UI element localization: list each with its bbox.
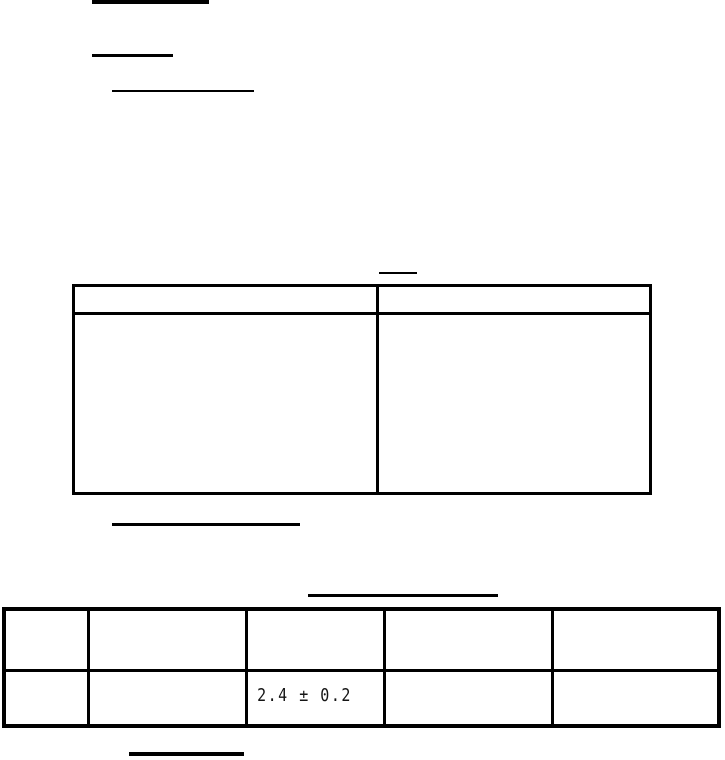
heading-underline-1: [92, 0, 209, 4]
heading-underline-2: [92, 54, 173, 57]
table2-caption-underline: [308, 594, 498, 597]
table2-header-cell-5: [554, 611, 717, 672]
table1-caption-underline: [379, 272, 417, 274]
measurement-value: 2.4 ± 0.2: [257, 684, 352, 705]
table2-header-cell-2: [90, 611, 248, 672]
table1-header-cell-1: [75, 287, 379, 315]
table2-row-cell-4: [386, 672, 554, 724]
heading-underline-5: [129, 752, 244, 756]
table2: 2.4 ± 0.2: [2, 607, 721, 728]
heading-underline-3: [112, 90, 254, 92]
table1: [72, 284, 652, 495]
table2-row-cell-1: [6, 672, 90, 724]
table1-header-cell-2: [379, 287, 649, 315]
table2-header-cell-3: [248, 611, 386, 672]
table2-header-cell-1: [6, 611, 90, 672]
table2-row-cell-5: [554, 672, 717, 724]
heading-underline-4: [112, 523, 300, 526]
table1-body-cell-1: [75, 315, 379, 492]
table2-row-cell-3: 2.4 ± 0.2: [248, 672, 386, 724]
document-page: 2.4 ± 0.2: [0, 0, 725, 760]
table2-header-cell-4: [386, 611, 554, 672]
table1-body-cell-2: [379, 315, 649, 492]
table2-row-cell-2: [90, 672, 248, 724]
